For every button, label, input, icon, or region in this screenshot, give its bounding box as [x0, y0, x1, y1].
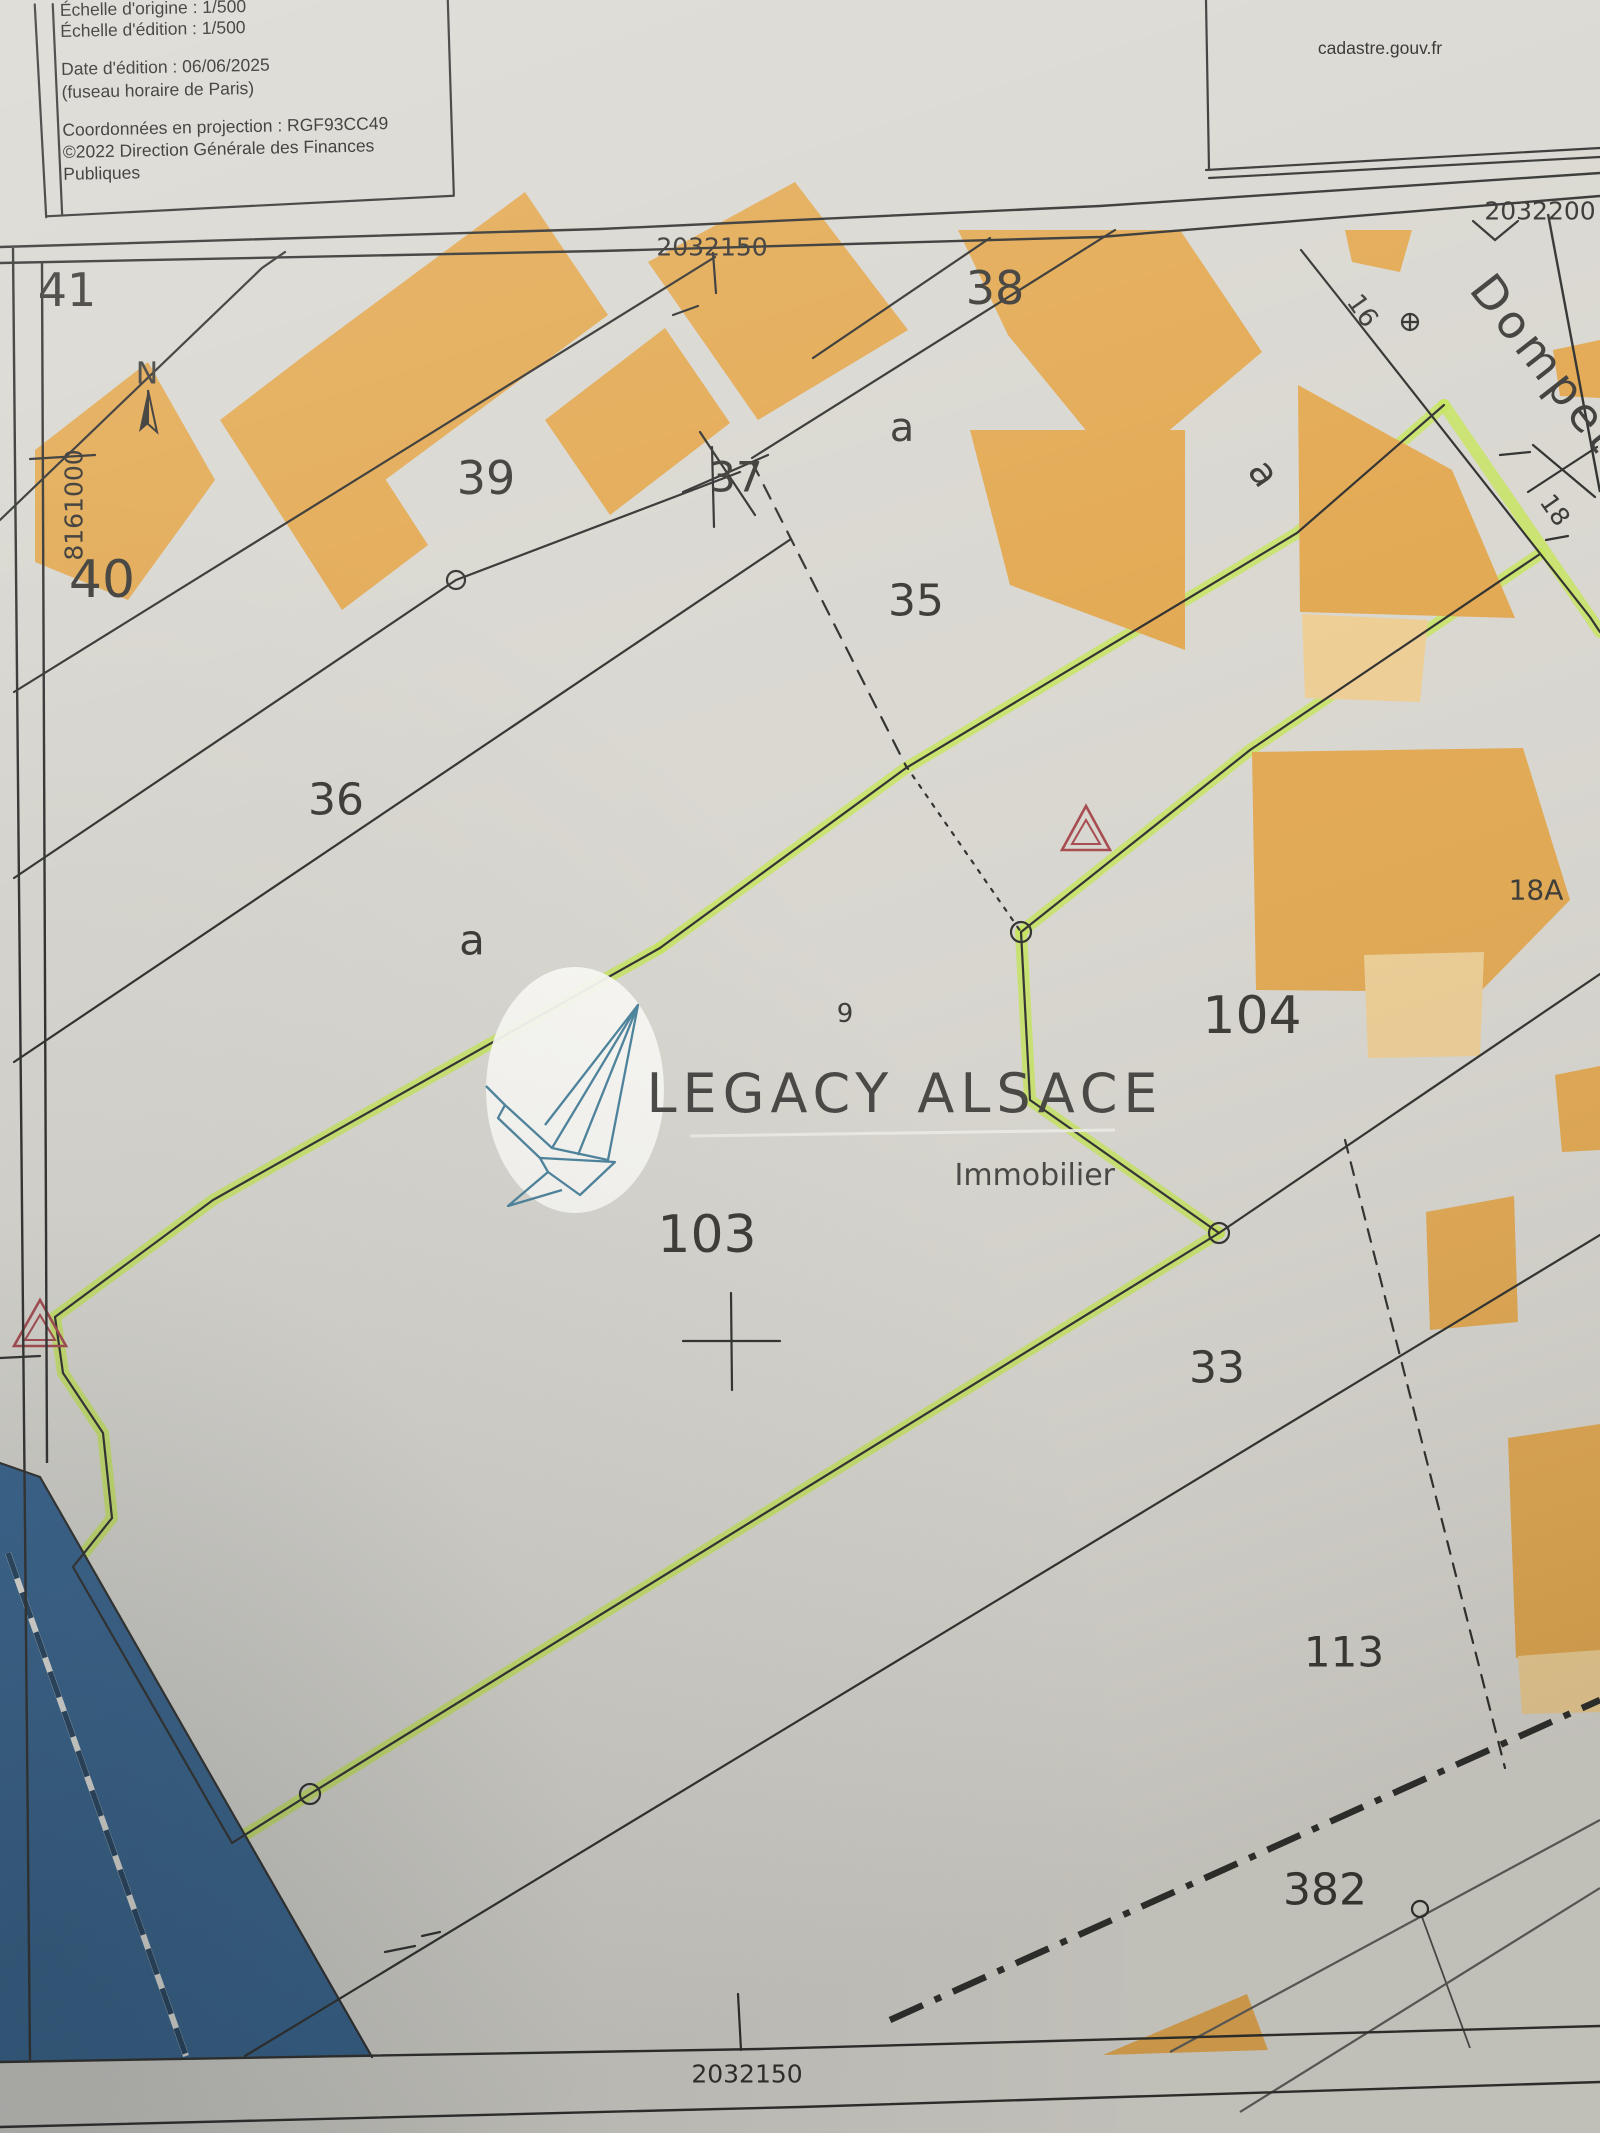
cadastral-map-photo: N Échelle d'origine : 1/500 Échelle d'éd…	[0, 0, 1600, 2133]
photo-corner-shadow	[0, 0, 1600, 2133]
